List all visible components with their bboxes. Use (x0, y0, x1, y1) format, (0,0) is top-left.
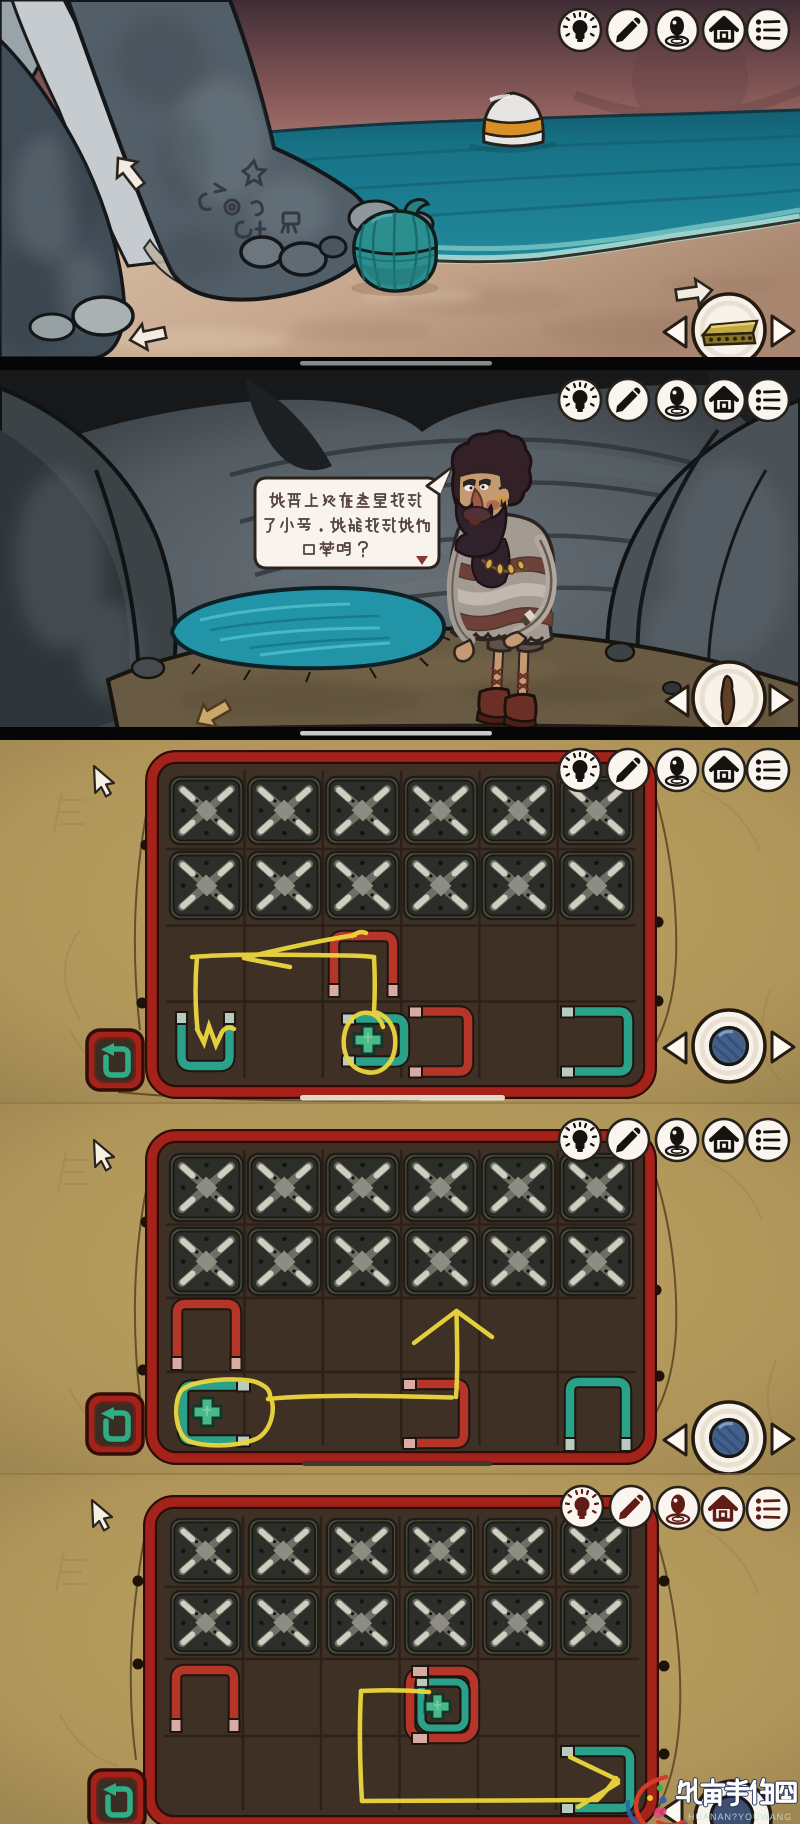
svg-text:HUANAN?YOUWANG: HUANAN?YOUWANG (688, 1812, 792, 1822)
